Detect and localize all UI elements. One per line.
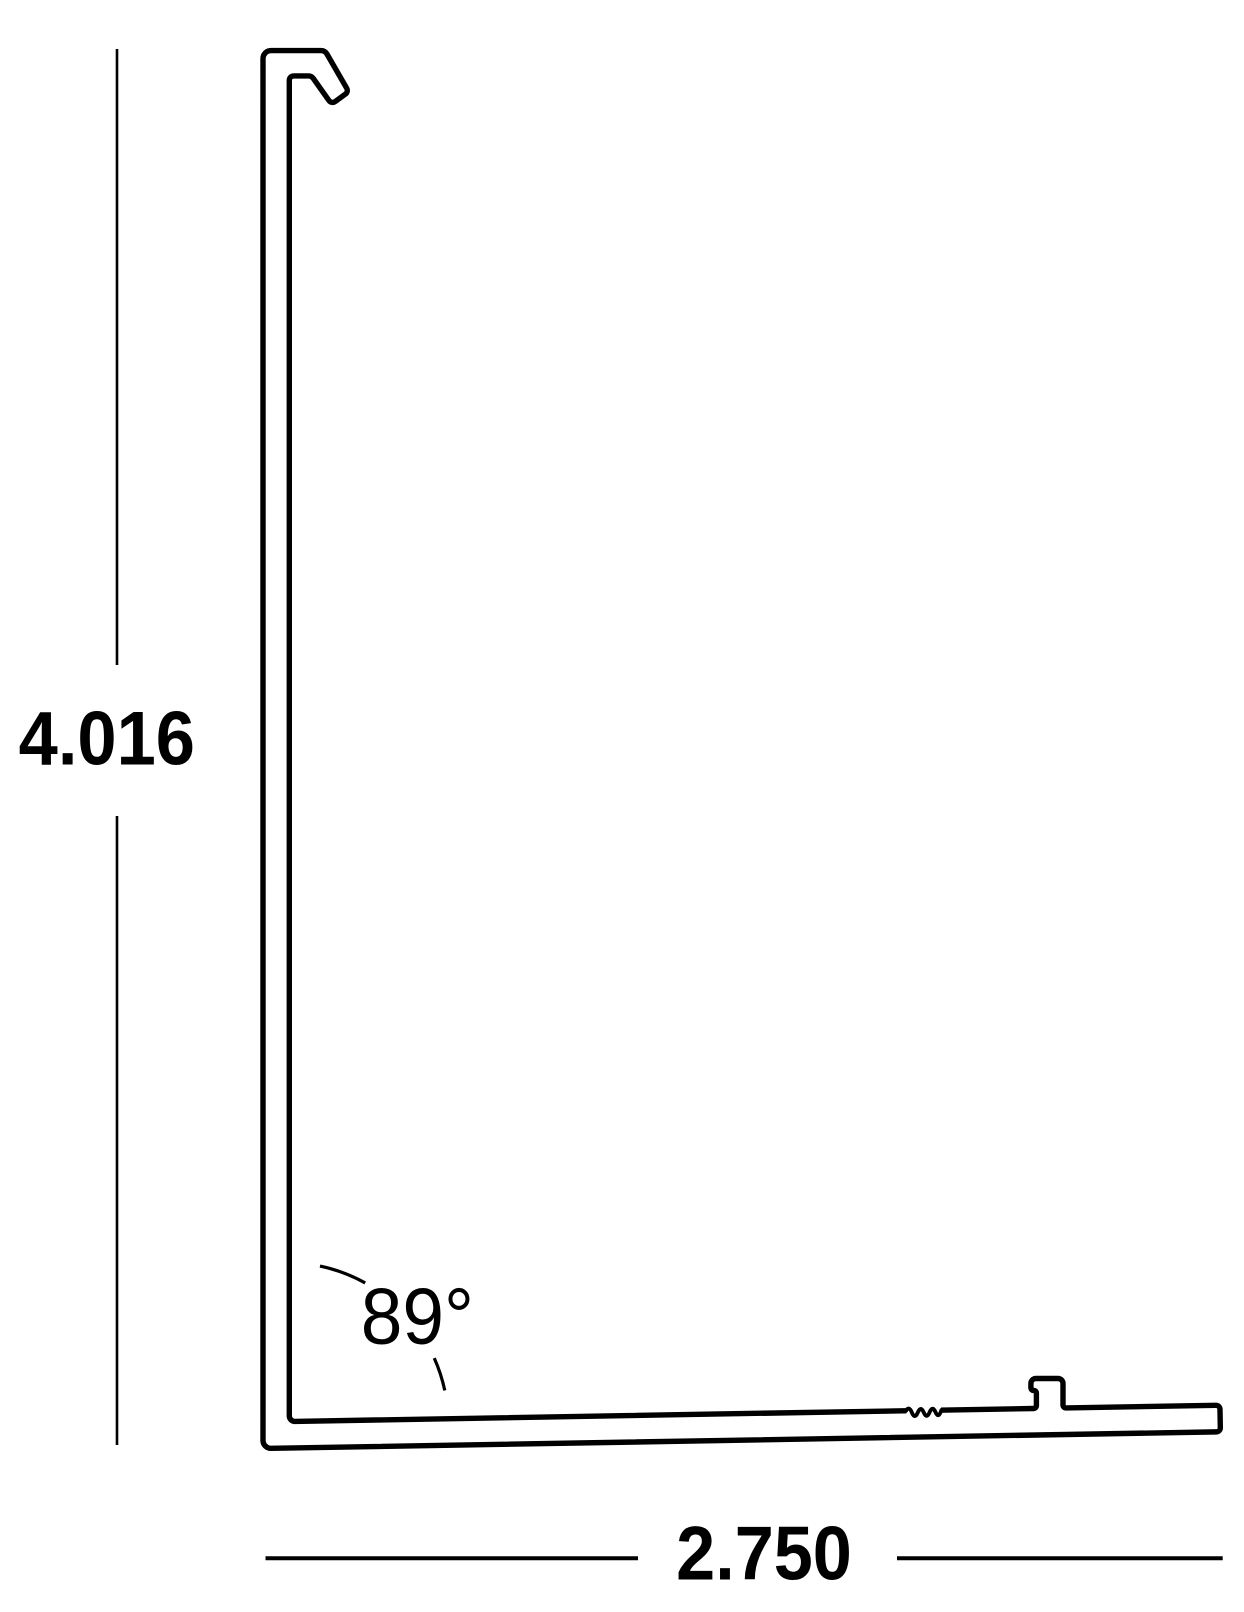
svg-text:2.750: 2.750: [676, 1511, 852, 1596]
svg-text:89°: 89°: [361, 1272, 474, 1361]
svg-text:4.016: 4.016: [19, 696, 195, 781]
